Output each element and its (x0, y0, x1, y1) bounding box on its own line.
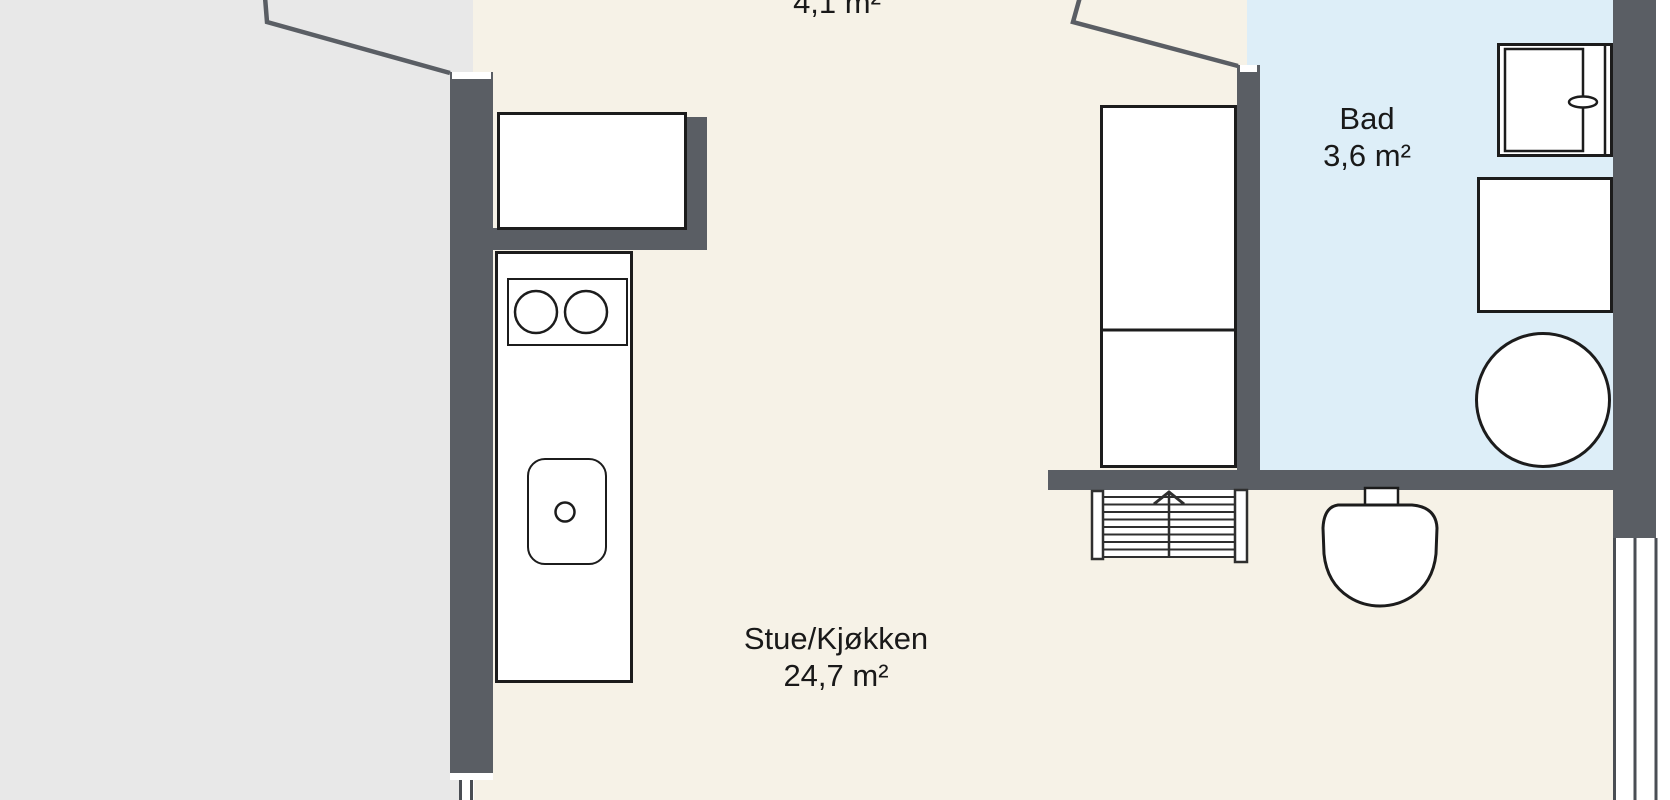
window-right (1613, 538, 1656, 800)
wall-left (450, 72, 493, 773)
wall-left-end-cap (450, 773, 493, 780)
living-kitchen-label: Stue/Kjøkken 24,7 m² (744, 620, 928, 694)
tall-cabinet (1100, 105, 1237, 468)
bathroom-label: Bad 3,6 m² (1323, 100, 1411, 174)
shower-cabin (1497, 43, 1613, 157)
wall-kitchen-stub (687, 117, 707, 228)
floor-plan: 4,1 m² Bad 3,6 m² Stue/Kjøkken 24,7 m² (0, 0, 1670, 800)
doorway-threshold-left (452, 72, 491, 79)
adjacent-area-doorway (450, 0, 473, 72)
hall-cabinet (497, 112, 687, 230)
bathroom-cabinet (1477, 177, 1613, 313)
wall-bathroom-left (1237, 65, 1260, 470)
wall-outer-right (1613, 0, 1656, 538)
hall-area-value: 4,1 m² (793, 0, 881, 21)
hall-area-label: 4,1 m² (793, 0, 881, 21)
round-tub (1475, 332, 1611, 468)
living-kitchen-name: Stue/Kjøkken (744, 620, 928, 657)
cooktop (507, 278, 628, 346)
window-bottom-left (459, 780, 474, 800)
kitchen-sink (527, 458, 607, 565)
living-kitchen-area-value: 24,7 m² (744, 657, 928, 694)
adjacent-area-floor (0, 0, 450, 800)
doorway-threshold-right (1240, 65, 1257, 72)
wall-kitchen-band (493, 228, 707, 250)
adjacent-area-sliver (450, 780, 459, 800)
bathroom-area-value: 3,6 m² (1323, 137, 1411, 174)
wall-bathroom-south (1048, 470, 1613, 490)
bathroom-name: Bad (1323, 100, 1411, 137)
